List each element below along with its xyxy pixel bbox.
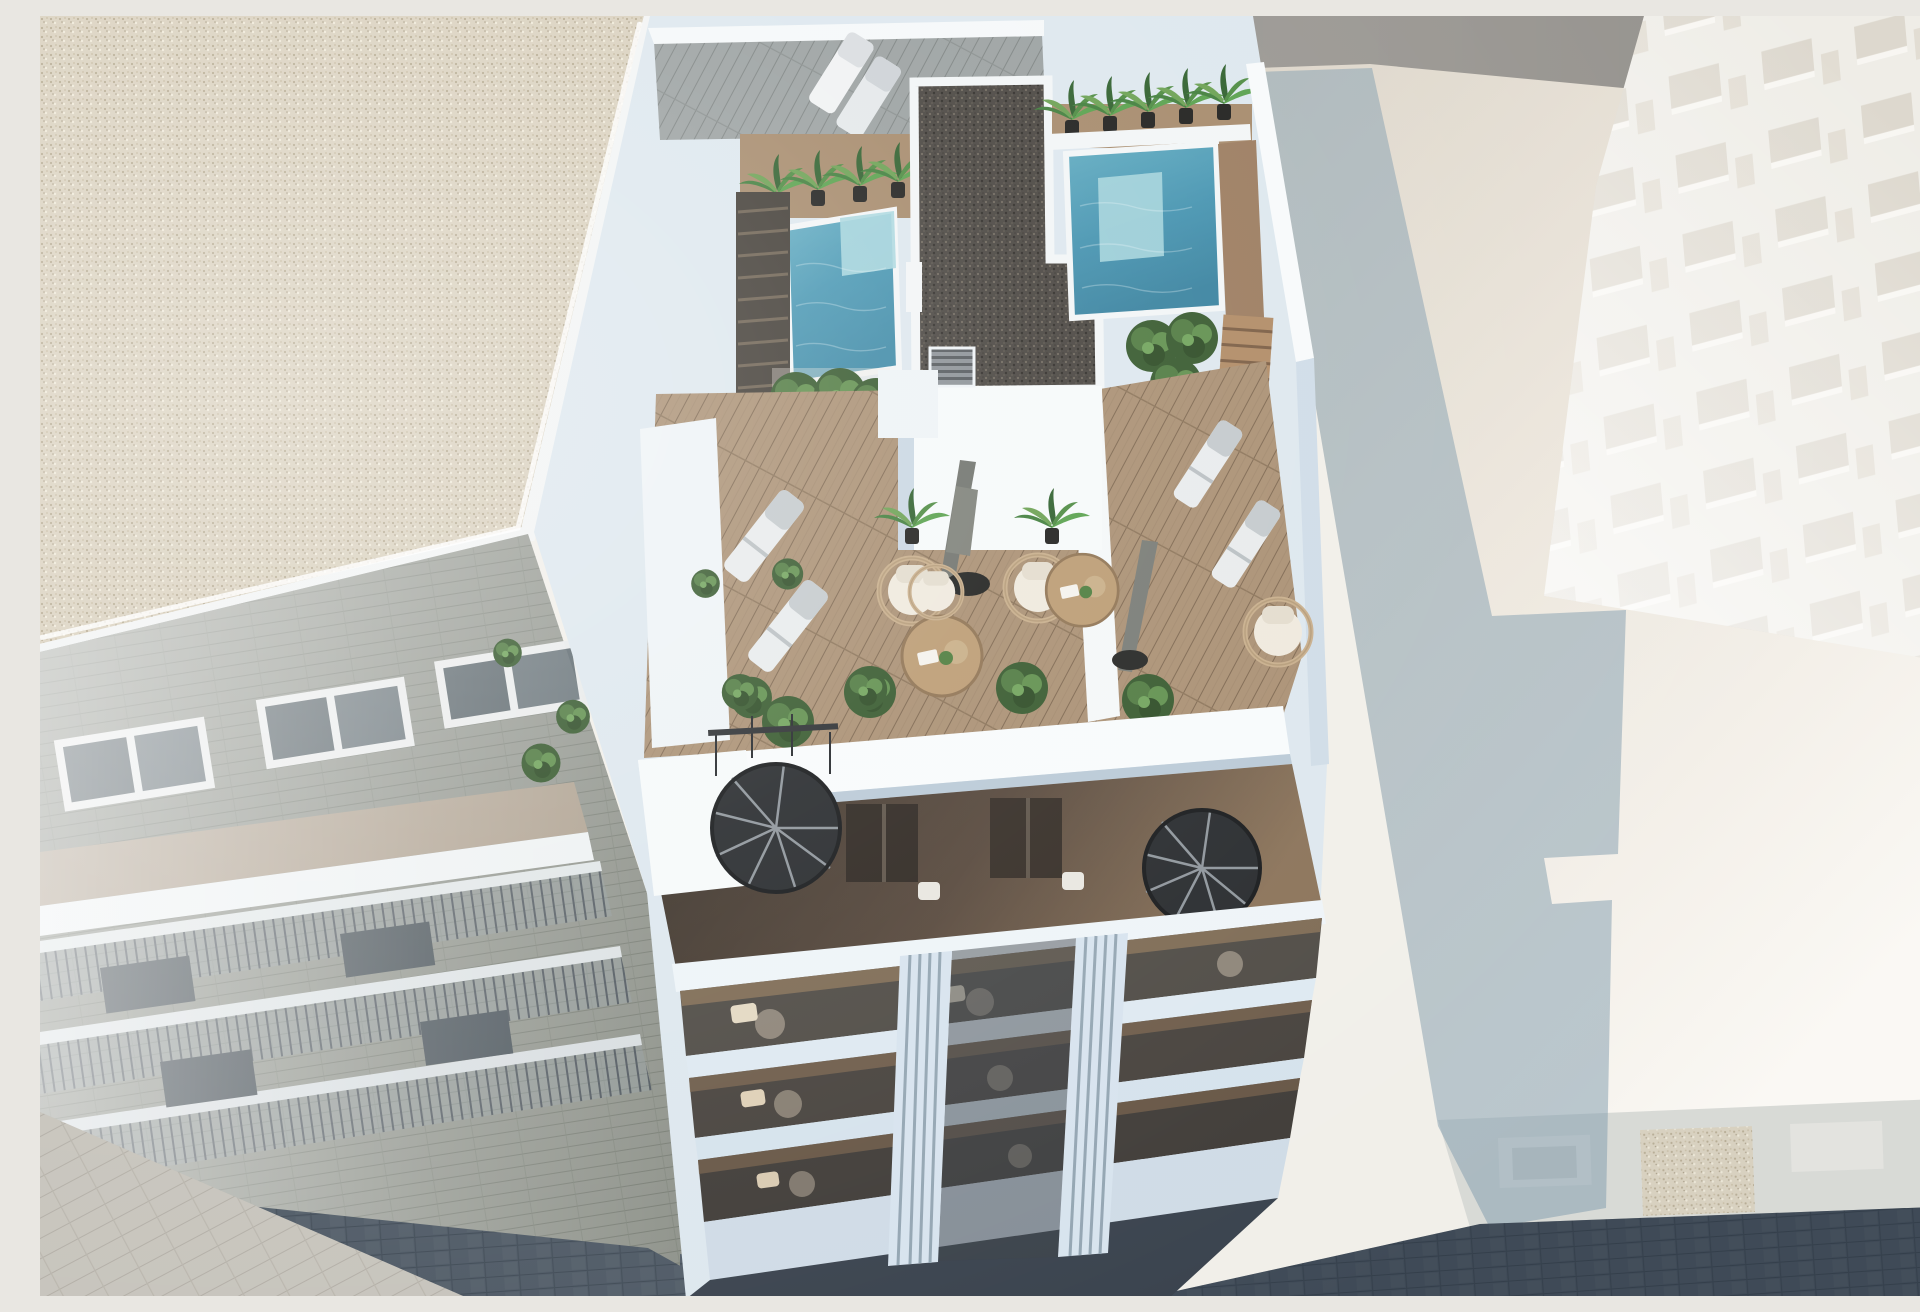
architectural-render: Aerial 3D rendering of a modern white ap… [40, 16, 1920, 1296]
render-canvas: Aerial 3D rendering of a modern white ap… [40, 16, 1920, 1296]
sun-haze-overlay [40, 16, 1920, 1296]
